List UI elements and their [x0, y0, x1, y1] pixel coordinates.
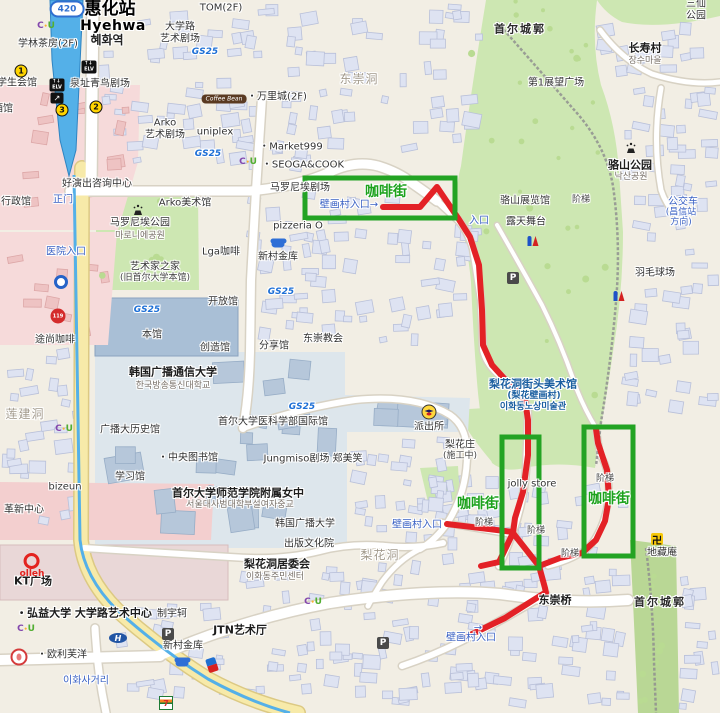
basemap [0, 0, 720, 713]
fortress-wall-band [630, 540, 679, 713]
pink-zone-2 [0, 232, 117, 345]
snu-main-building [95, 298, 238, 356]
map-canvas[interactable]: 惠化站Hyehwa혜화역TOM(2F)学林茶房(2F)大学路 艺术剧场学生会馆泉… [0, 0, 720, 713]
